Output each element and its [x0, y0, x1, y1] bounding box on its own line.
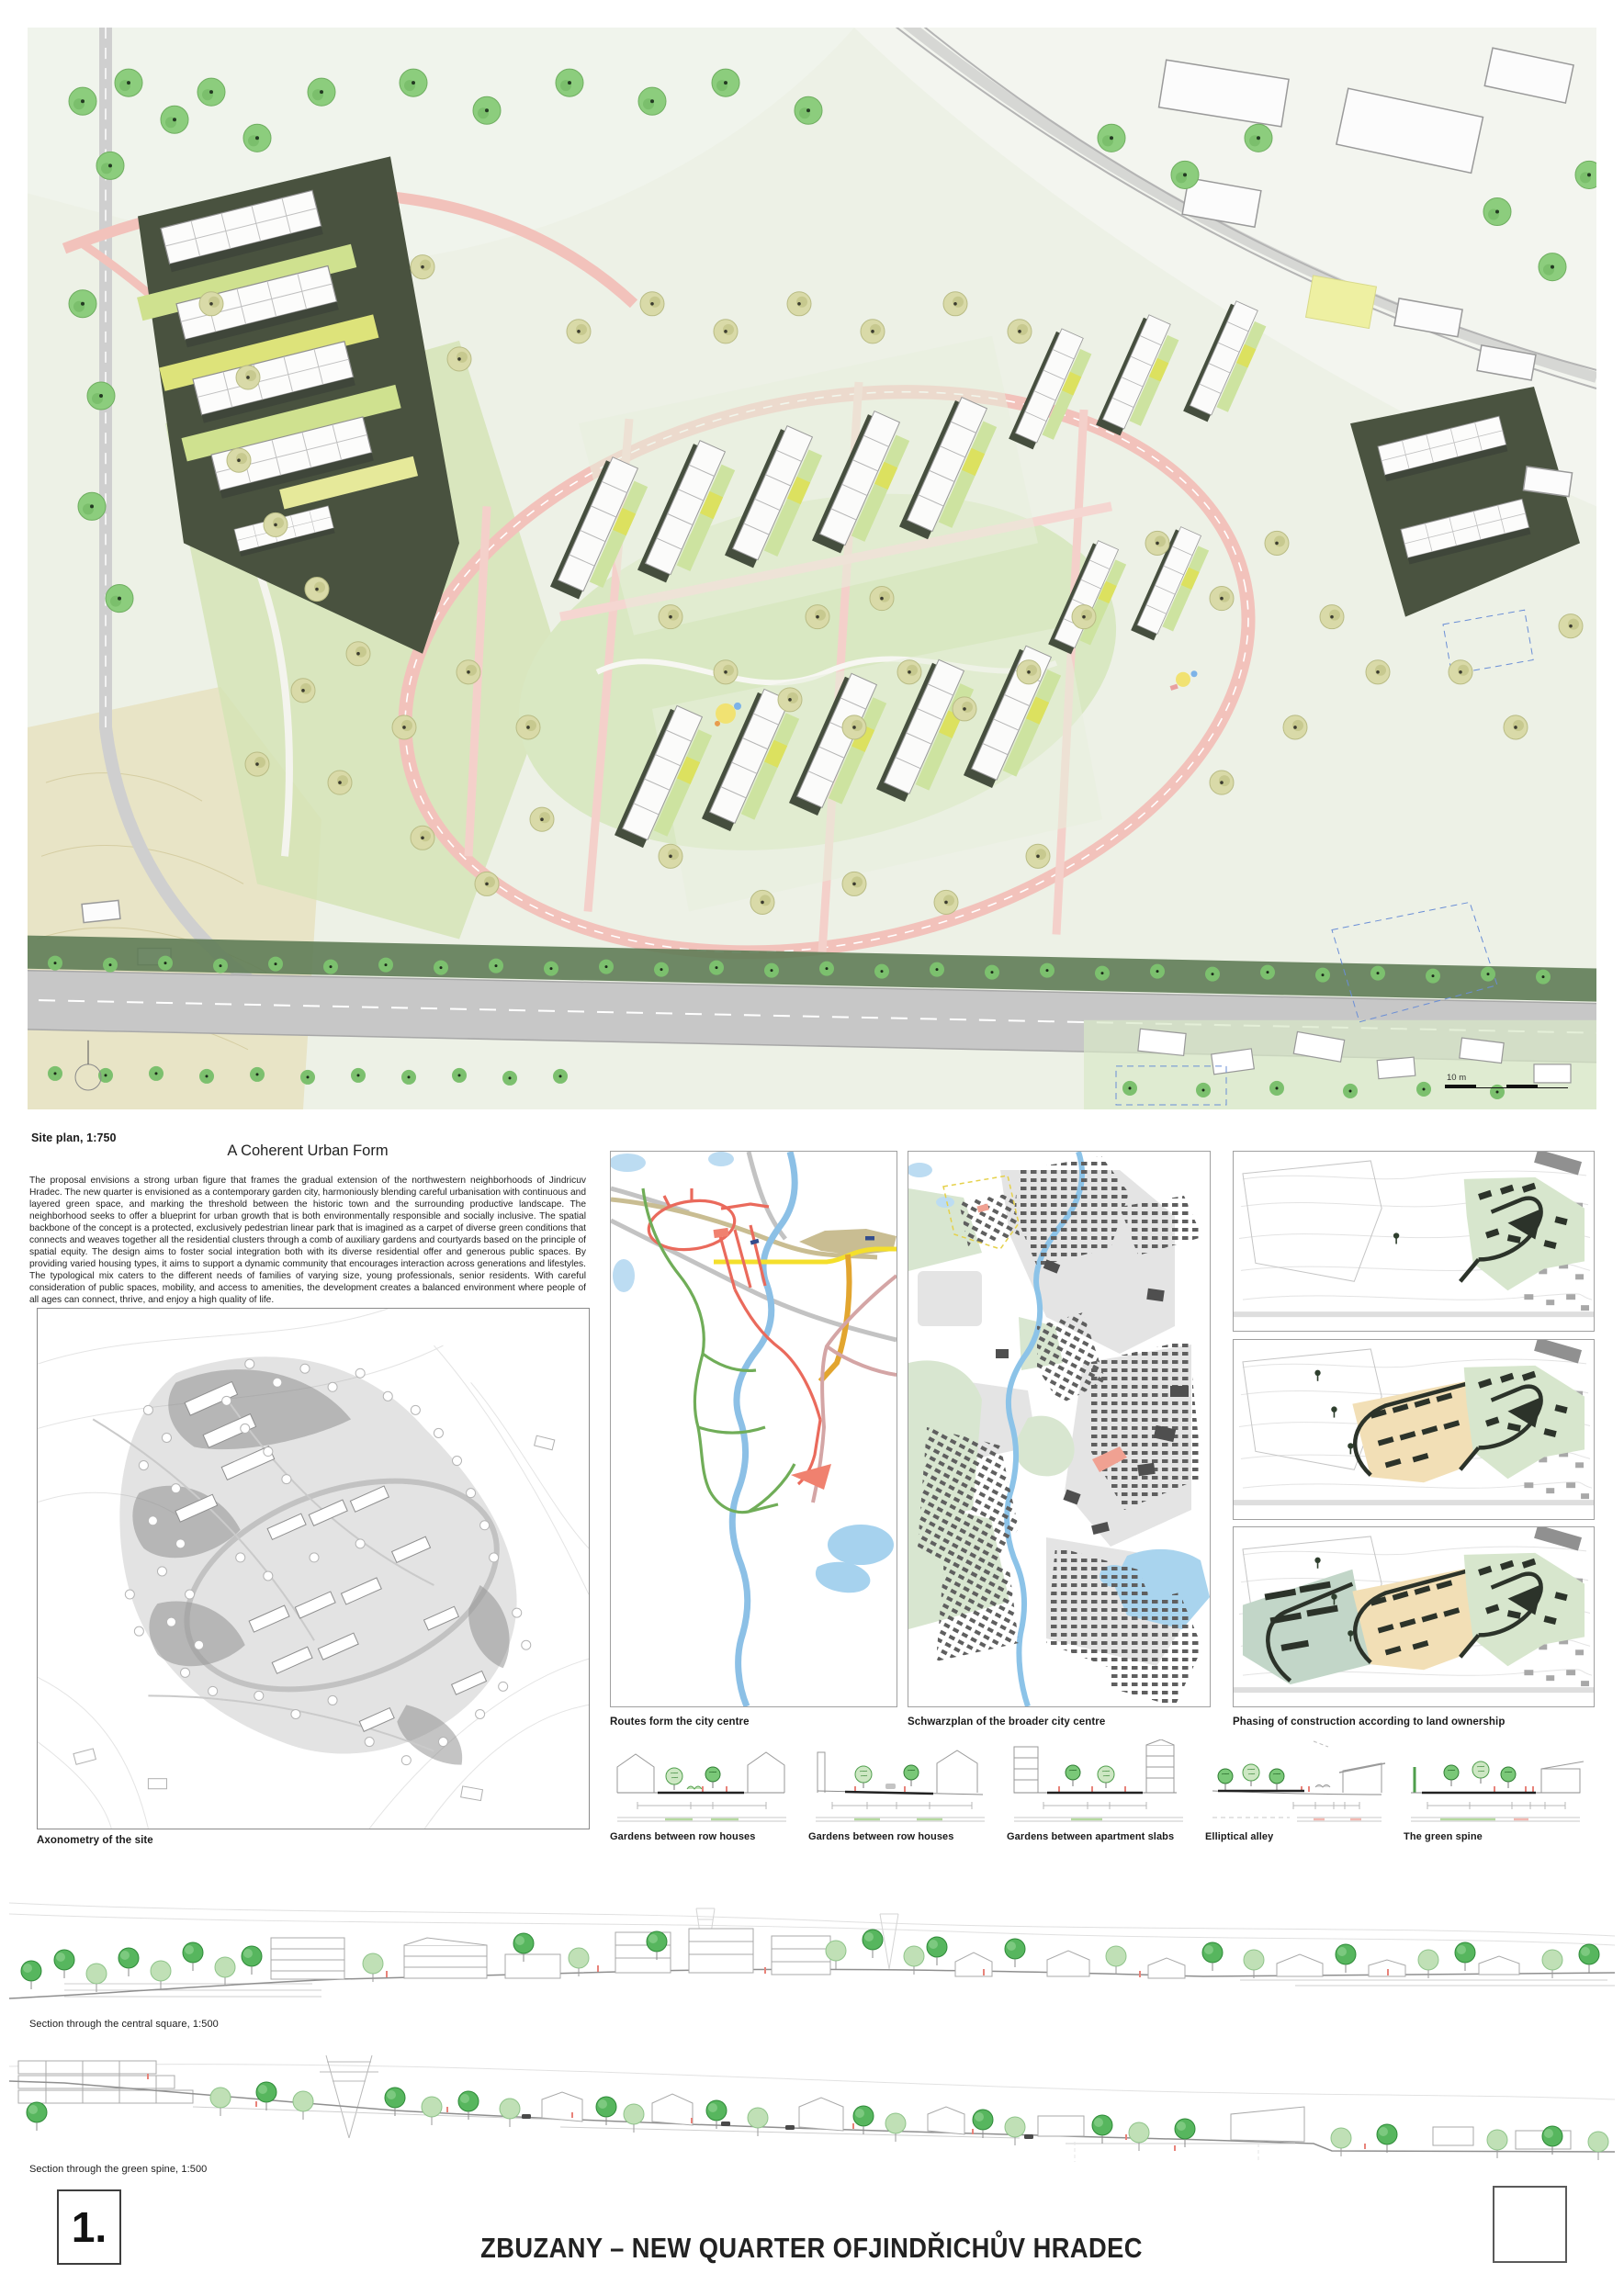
- green-spine-section: [9, 2054, 1615, 2164]
- phasing-map-2: [1233, 1339, 1595, 1520]
- stamp-box: [1493, 2186, 1567, 2263]
- phasing-panel: [1233, 1151, 1595, 1707]
- narrative-heading: A Coherent Urban Form: [66, 1142, 549, 1160]
- street-section-3: [1007, 1739, 1190, 1826]
- phasing-caption: Phasing of construction according to lan…: [1233, 1716, 1505, 1728]
- pylon: [320, 2055, 378, 2138]
- routes-caption: Routes form the city centre: [610, 1716, 750, 1728]
- competition-board: 10 m Site plan, 1:750 A Coherent Urban F…: [0, 0, 1624, 2296]
- street-section-2-caption: Gardens between row houses: [808, 1831, 953, 1842]
- phasing-map-1: [1233, 1151, 1595, 1332]
- routes-map-panel: [610, 1151, 897, 1707]
- axonometry-caption: Axonometry of the site: [37, 1835, 153, 1846]
- board-title: ZBUZANY – NEW QUARTER OFJINDŘICHŮV HRADE…: [0, 2232, 1624, 2265]
- routes-map: [611, 1152, 897, 1706]
- street-section-5-caption: The green spine: [1404, 1831, 1483, 1842]
- schwarzplan-caption: Schwarzplan of the broader city centre: [908, 1716, 1105, 1728]
- axonometry-panel: [37, 1308, 590, 1829]
- green-spine-section-caption: Section through the green spine, 1:500: [29, 2164, 207, 2175]
- street-section-4: [1205, 1739, 1389, 1826]
- street-section-2: [808, 1739, 992, 1826]
- site-plan-illustration: [28, 28, 1596, 1109]
- schwarzplan-map: [908, 1152, 1210, 1706]
- central-square-section-caption: Section through the central square, 1:50…: [29, 2019, 219, 2030]
- narrative-block: A Coherent Urban Form The proposal envis…: [29, 1142, 586, 1307]
- street-section-3-caption: Gardens between apartment slabs: [1007, 1831, 1174, 1842]
- schwarzplan-panel: [908, 1151, 1211, 1707]
- street-section-4-caption: Elliptical alley: [1205, 1831, 1273, 1842]
- scale-bar-label: 10 m: [1447, 1073, 1573, 1083]
- narrative-body: The proposal envisions a strong urban fi…: [29, 1175, 586, 1307]
- site-plan-panel: [28, 28, 1596, 1109]
- street-section-1: [610, 1739, 794, 1826]
- phasing-map-3: [1233, 1526, 1595, 1707]
- street-section-1-caption: Gardens between row houses: [610, 1831, 755, 1842]
- street-section-5: [1404, 1739, 1587, 1826]
- scale-bar-segments: [1445, 1085, 1568, 1088]
- central-square-section: [9, 1886, 1615, 2017]
- axonometry-illustration: [38, 1309, 589, 1829]
- scale-bar: 10 m: [1445, 1073, 1573, 1088]
